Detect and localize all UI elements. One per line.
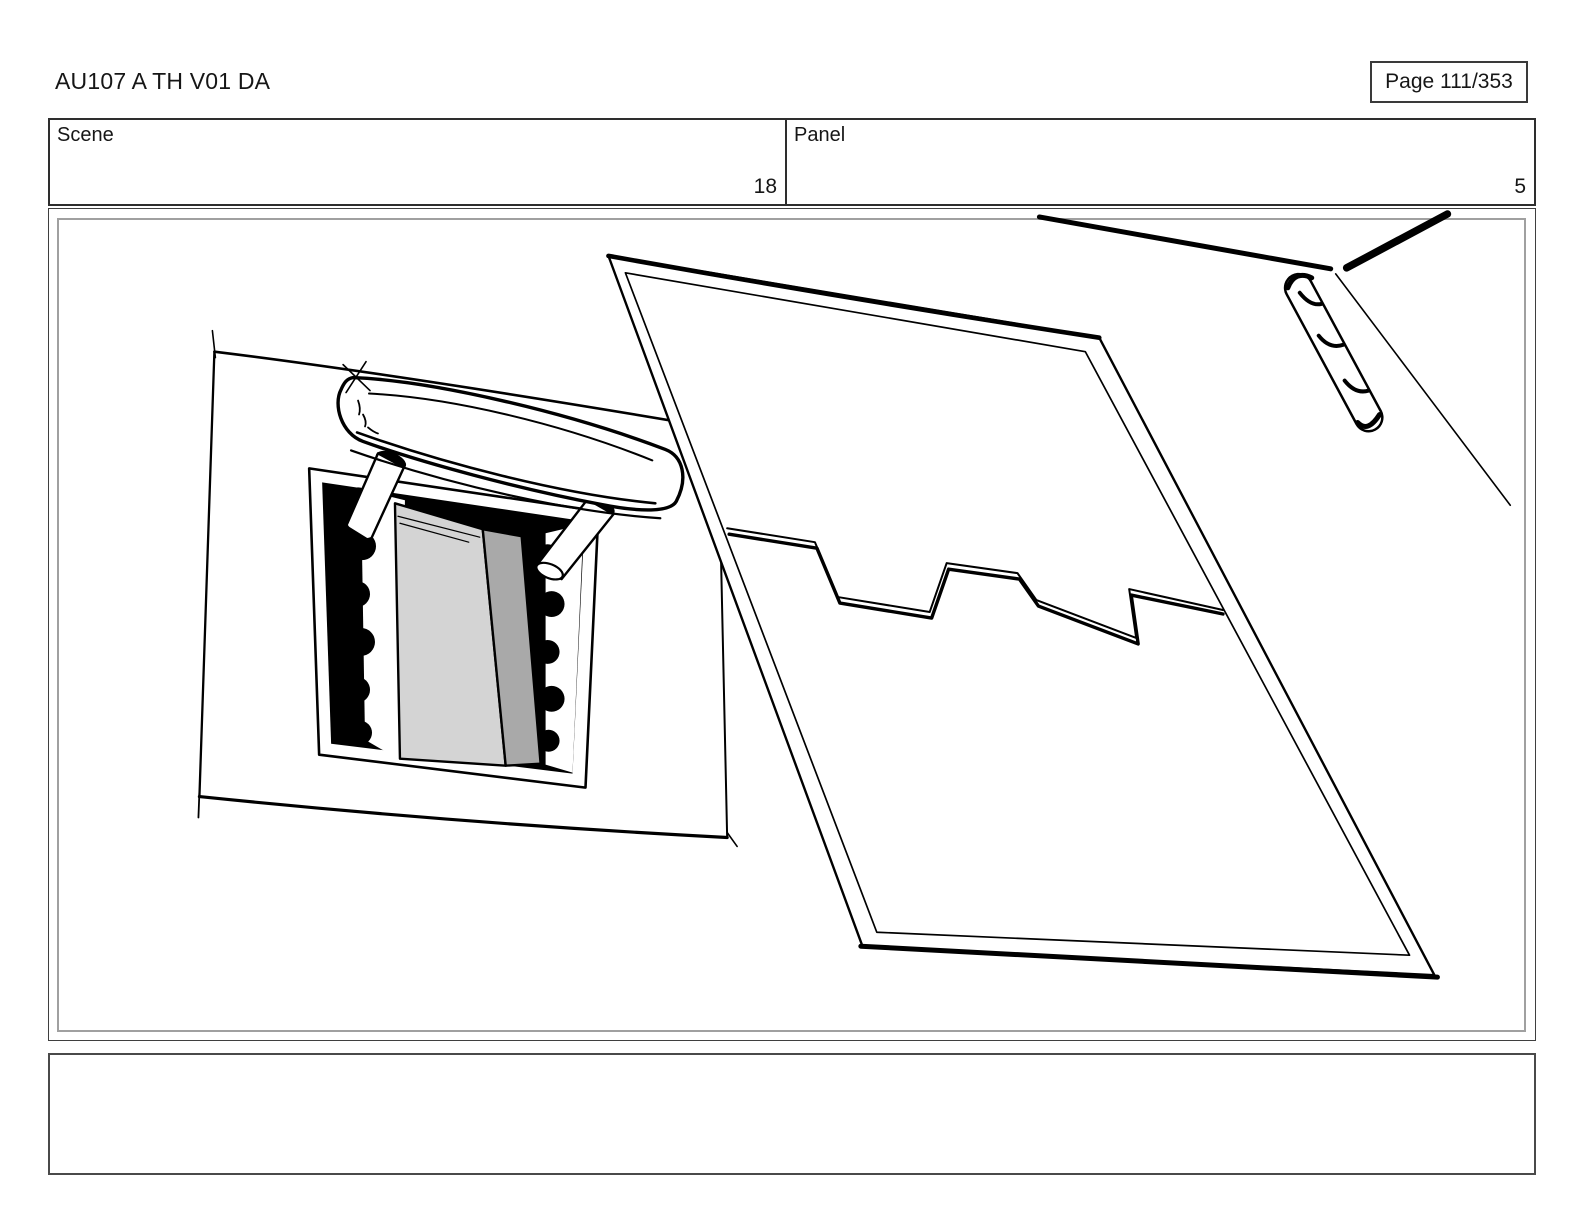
panel-value: 5 xyxy=(1514,175,1526,199)
scene-panel-bar: Scene 18 Panel 5 xyxy=(48,118,1536,206)
storyboard-drawing xyxy=(49,209,1535,1040)
scene-label: Scene xyxy=(57,124,114,147)
page-number-label: Page 111/353 xyxy=(1385,70,1513,94)
hinge-pen-object xyxy=(1288,275,1380,426)
page-number-box: Page 111/353 xyxy=(1370,61,1528,103)
panel-cell: Panel 5 xyxy=(787,120,1534,204)
right-seat-panel xyxy=(608,256,1437,977)
scene-value: 18 xyxy=(754,175,777,199)
page-title: AU107 A TH V01 DA xyxy=(55,68,270,95)
panel-label: Panel xyxy=(794,124,845,147)
storyboard-frame xyxy=(48,208,1536,1041)
notes-box xyxy=(48,1053,1536,1175)
scene-cell: Scene 18 xyxy=(50,120,787,204)
